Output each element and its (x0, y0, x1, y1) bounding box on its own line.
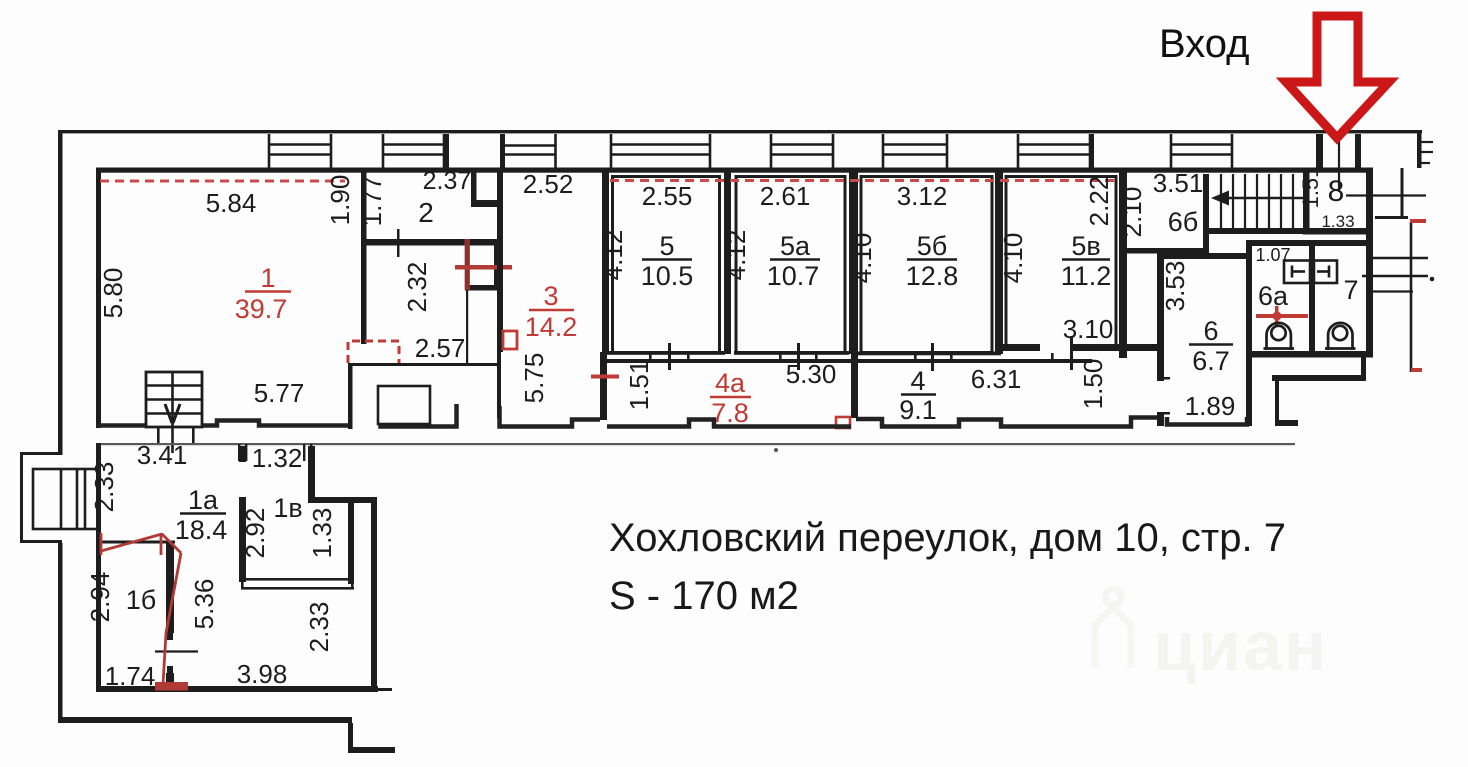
svg-text:1.33: 1.33 (1321, 212, 1354, 231)
svg-text:1.50: 1.50 (1078, 359, 1108, 410)
svg-text:6б: 6б (1168, 207, 1198, 237)
svg-text:3.41: 3.41 (137, 440, 188, 470)
svg-text:1.07: 1.07 (1255, 245, 1290, 265)
svg-text:4.12: 4.12 (598, 230, 628, 281)
svg-text:10.5: 10.5 (641, 261, 694, 291)
svg-text:S - 170 м2: S - 170 м2 (609, 574, 799, 618)
svg-text:3: 3 (543, 281, 558, 311)
svg-text:5.30: 5.30 (786, 359, 837, 389)
svg-text:6.31: 6.31 (971, 364, 1022, 394)
svg-text:1.33: 1.33 (307, 508, 337, 559)
svg-text:2: 2 (418, 197, 434, 228)
svg-text:7: 7 (1343, 275, 1358, 305)
svg-text:1в: 1в (273, 493, 302, 523)
svg-text:1.74: 1.74 (105, 661, 156, 691)
svg-text:4.10: 4.10 (847, 233, 877, 284)
svg-text:2.57: 2.57 (415, 333, 466, 363)
svg-text:2.33: 2.33 (89, 462, 119, 513)
svg-text:2.10: 2.10 (1117, 187, 1147, 238)
svg-text:8: 8 (1328, 175, 1345, 208)
svg-text:39.7: 39.7 (235, 294, 288, 324)
svg-text:6: 6 (1203, 316, 1218, 346)
svg-text:1а: 1а (188, 485, 219, 515)
svg-text:4a: 4a (715, 368, 746, 398)
svg-text:3.51: 3.51 (1153, 168, 1204, 198)
svg-text:2.94: 2.94 (85, 572, 115, 623)
svg-text:1.32: 1.32 (252, 443, 303, 473)
svg-text:3.53: 3.53 (1160, 261, 1190, 312)
svg-text:2.22: 2.22 (1084, 176, 1114, 227)
svg-text:5а: 5а (780, 231, 811, 261)
svg-text:18.4: 18.4 (175, 515, 228, 545)
svg-text:3.10: 3.10 (1063, 314, 1114, 344)
svg-text:6а: 6а (1258, 281, 1289, 311)
svg-text:1.51: 1.51 (624, 360, 654, 411)
svg-text:11.2: 11.2 (1061, 261, 1112, 291)
svg-text:4.12: 4.12 (721, 230, 751, 281)
svg-text:5.84: 5.84 (206, 188, 257, 218)
svg-text:2.92: 2.92 (240, 508, 270, 559)
svg-text:5б: 5б (917, 231, 947, 261)
svg-text:6.7: 6.7 (1192, 346, 1230, 376)
svg-text:1.90: 1.90 (325, 175, 355, 226)
svg-text:10.7: 10.7 (767, 261, 820, 291)
svg-text:1б: 1б (126, 585, 156, 615)
svg-text:1: 1 (260, 263, 275, 293)
svg-text:5в: 5в (1071, 231, 1100, 261)
svg-text:3.12: 3.12 (897, 181, 948, 211)
svg-text:2.32: 2.32 (402, 262, 432, 313)
svg-text:2.55: 2.55 (642, 181, 693, 211)
svg-text:2.61: 2.61 (760, 181, 811, 211)
svg-text:5.36: 5.36 (189, 579, 219, 630)
svg-text:4.10: 4.10 (998, 233, 1028, 284)
svg-text:5.80: 5.80 (98, 268, 128, 319)
svg-text:1.51: 1.51 (1298, 166, 1323, 209)
svg-text:1.89: 1.89 (1185, 391, 1236, 421)
svg-text:5.75: 5.75 (519, 353, 549, 404)
svg-text:циан: циан (1153, 607, 1328, 685)
svg-text:1.77: 1.77 (357, 176, 387, 227)
svg-text:2.37: 2.37 (423, 167, 472, 195)
svg-text:2.52: 2.52 (523, 169, 574, 199)
svg-text:3.98: 3.98 (237, 659, 288, 689)
svg-text:12.8: 12.8 (906, 261, 959, 291)
svg-text:Хохловский переулок, дом 10, с: Хохловский переулок, дом 10, стр. 7 (609, 516, 1286, 560)
svg-text:Вход: Вход (1159, 22, 1250, 66)
svg-text:4: 4 (910, 366, 925, 396)
svg-text:7.8: 7.8 (711, 398, 749, 428)
svg-text:5.77: 5.77 (254, 378, 305, 408)
svg-text:14.2: 14.2 (525, 312, 578, 342)
svg-text:9.1: 9.1 (899, 395, 937, 425)
svg-text:5: 5 (659, 231, 674, 261)
svg-text:2.33: 2.33 (304, 602, 334, 653)
